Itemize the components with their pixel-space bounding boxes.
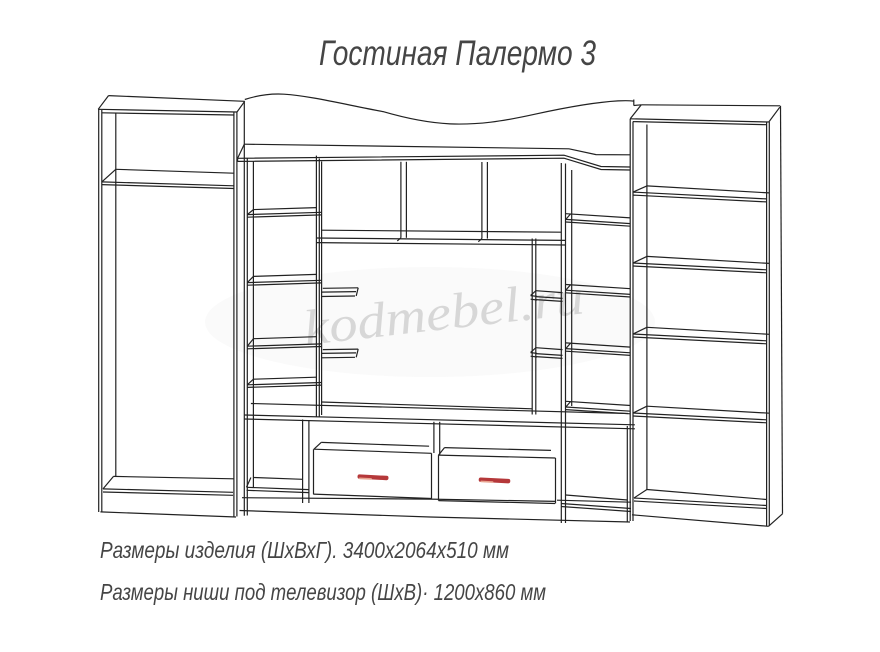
svg-text:Размеры ниши под телевизор (Шх: Размеры ниши под телевизор (ШхВ)· 1200х8…: [100, 579, 546, 605]
svg-text:Гостиная Палермо 3: Гостиная Палермо 3: [319, 34, 596, 73]
svg-text:Размеры изделия (ШхВхГ). 3400: Размеры изделия (ШхВхГ). 3400х2064х510 м…: [100, 537, 509, 563]
